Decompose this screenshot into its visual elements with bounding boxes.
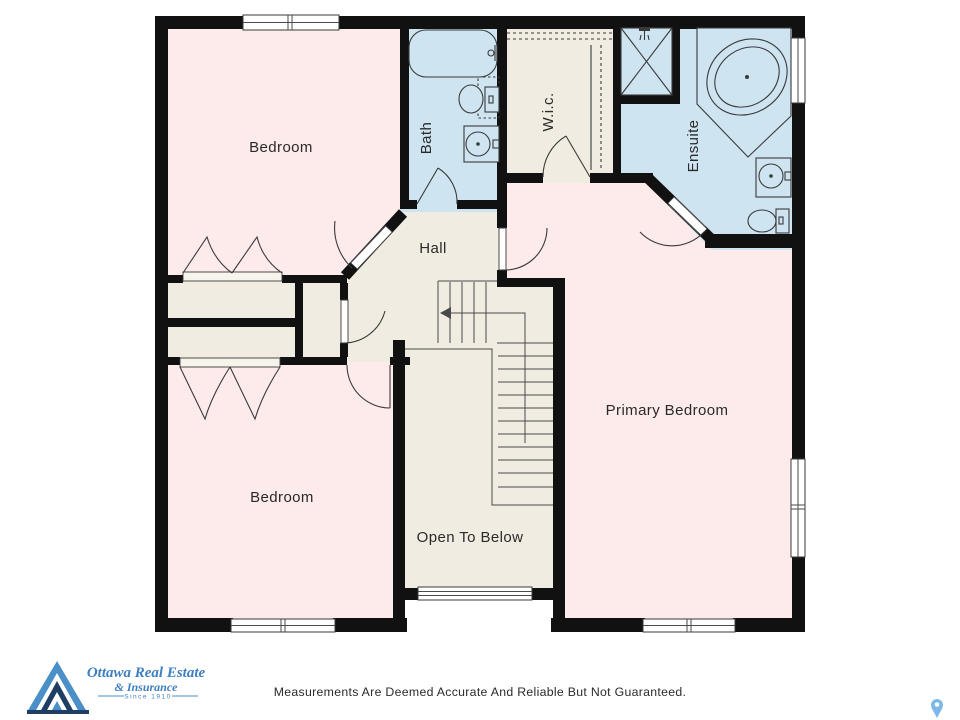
window-bedroom-bottom [231, 619, 335, 632]
label-wic: W.i.c. [540, 92, 557, 131]
label-ensuite: Ensuite [685, 120, 702, 173]
bath-sink [464, 126, 499, 162]
footer-disclaimer: Measurements Are Deemed Accurate And Rel… [274, 685, 687, 699]
footprint-notch [405, 598, 553, 632]
window-bedroom-top [243, 15, 339, 30]
logo-triangle-icon [27, 661, 89, 714]
label-open-to-below: Open To Below [417, 529, 524, 546]
label-bedroom-top: Bedroom [249, 139, 313, 156]
map-pin-icon [931, 699, 943, 718]
label-bath: Bath [418, 122, 435, 154]
window-ensuite-right [791, 38, 805, 103]
shower [621, 27, 672, 95]
label-hall: Hall [419, 240, 446, 257]
brand-name-line2: & Insurance [114, 680, 178, 694]
label-bedroom-bottom: Bedroom [250, 489, 314, 506]
wic-floor [500, 22, 621, 183]
open-to-below-floor [393, 340, 565, 600]
label-primary-bedroom: Primary Bedroom [606, 402, 729, 419]
floorplan-canvas: Bedroom Bedroom Hall Primary Bedroom Ope… [0, 0, 960, 720]
railing-open-to-below [418, 587, 532, 600]
brand-tagline: Since 1910 [124, 694, 172, 701]
brand-name-line1: Ottawa Real Estate [87, 665, 206, 681]
brand-logo: Ottawa Real Estate & Insurance Since 191… [27, 661, 206, 714]
bathtub-faucet [488, 50, 494, 56]
window-primary-bottom [643, 619, 735, 632]
bathtub [409, 30, 497, 77]
ensuite-toilet [748, 209, 789, 233]
window-primary-right [791, 459, 805, 557]
ensuite-sink [756, 158, 791, 197]
